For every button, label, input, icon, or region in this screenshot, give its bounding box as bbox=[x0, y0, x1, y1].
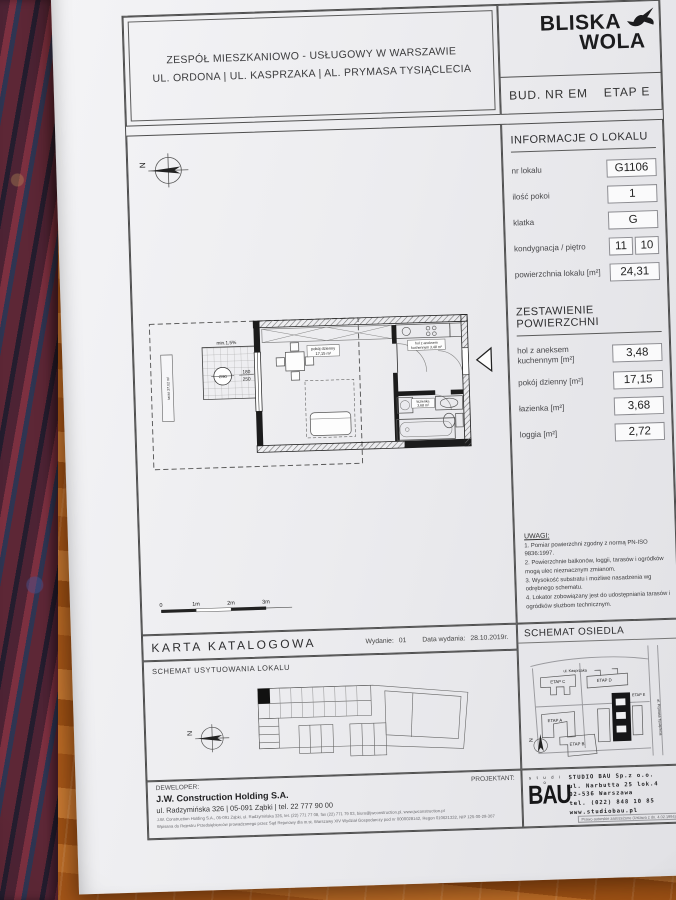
developer-box: DEWELOPER: J.W. Construction Holding S.A… bbox=[147, 770, 524, 840]
info-label: nr lokalu bbox=[511, 166, 542, 177]
toilet bbox=[443, 413, 463, 428]
info-value: G1106 bbox=[606, 158, 657, 178]
drain-label: ∅90 bbox=[219, 374, 228, 379]
info-label: powierzchnia lokalu [m²] bbox=[515, 268, 601, 281]
info-value: 24,31 bbox=[609, 262, 660, 282]
issue: Wydanie:01 bbox=[365, 637, 406, 645]
info-label: klatka bbox=[513, 218, 534, 229]
svg-text:0: 0 bbox=[159, 603, 162, 609]
studio-logo-main: BAU bbox=[528, 782, 565, 809]
catalog-card-meta: Wydanie:01 Data wydania:28.10.2019r. bbox=[365, 633, 508, 644]
bath-wall-right bbox=[451, 389, 464, 394]
partition-lower bbox=[393, 373, 400, 442]
area-row: hol z aneksem kuchennym [m²] 3,48 bbox=[517, 342, 663, 367]
info-row: klatka G bbox=[513, 210, 658, 233]
brand-cell: BLISKA WOLA BUD. NR EM ETAP E bbox=[497, 0, 662, 115]
sofa bbox=[310, 412, 351, 436]
info-value: 1 bbox=[607, 184, 658, 204]
brand-logo: BLISKA WOLA bbox=[498, 1, 660, 78]
bath-wall-left bbox=[398, 390, 436, 396]
kitchen-counter bbox=[396, 323, 450, 338]
bath-door-arc bbox=[435, 394, 451, 410]
unit-partitions bbox=[269, 686, 358, 719]
window-dim-width: 180 bbox=[242, 369, 250, 375]
entry-arrow bbox=[476, 348, 491, 371]
unit-location-drawing: N bbox=[162, 667, 501, 778]
area-row: pokój dzienny [m²] 17,15 bbox=[518, 370, 663, 393]
svg-text:N: N bbox=[138, 162, 147, 168]
wardrobe bbox=[262, 325, 392, 343]
info-row: ilość pokoi 1 bbox=[512, 184, 657, 207]
bottom-right-column: SCHEMAT OSIEDLA ul. Kasprzaka bbox=[517, 619, 676, 828]
area-value: 3,48 bbox=[612, 343, 663, 363]
info-value-floor-a: 11 bbox=[609, 237, 634, 256]
estate-map-panel: SCHEMAT OSIEDLA ul. Kasprzaka bbox=[517, 619, 676, 770]
window-dim-height: 250 bbox=[243, 376, 251, 382]
architect-label: PROJEKTANT: bbox=[471, 775, 515, 783]
info-label: kondygnacja / piętro bbox=[514, 242, 586, 254]
svg-text:N: N bbox=[529, 738, 535, 742]
issue-date: Data wydania:28.10.2019r. bbox=[422, 633, 508, 643]
area-value: 2,72 bbox=[615, 422, 666, 442]
floorplan-drawing: taras 27,02 m² min.1,5% ∅90 180 250 bbox=[145, 305, 498, 474]
street-label-top: ul. Kasprzaka bbox=[563, 669, 587, 674]
stove-burners bbox=[426, 326, 436, 336]
catalog-card-title: KARTA KATALOGOWA bbox=[151, 636, 316, 655]
hummingbird-icon bbox=[625, 6, 656, 29]
bath-area: 3,68 m² bbox=[417, 403, 430, 407]
left-wall-upper bbox=[253, 321, 260, 352]
fridge bbox=[450, 323, 462, 337]
photo-of-catalog-card: ZESPÓŁ MIESZKANIOWO - USŁUGOWY W WARSZAW… bbox=[0, 0, 676, 900]
etap-e-label: ETAP E bbox=[632, 693, 646, 697]
main-row: N tar bbox=[126, 119, 676, 636]
paper-sheet: ZESPÓŁ MIESZKANIOWO - USŁUGOWY W WARSZAW… bbox=[50, 0, 676, 895]
areas-title: ZESTAWIENIE POWIERZCHNI bbox=[516, 300, 662, 337]
print-frame: ZESPÓŁ MIESZKANIOWO - USŁUGOWY W WARSZAW… bbox=[121, 0, 676, 840]
area-label: loggia [m²] bbox=[520, 429, 558, 440]
studio-bau-logo: s t u d i o BAU bbox=[528, 774, 565, 806]
area-row: loggia [m²] 2,72 bbox=[520, 422, 665, 445]
svg-text:N: N bbox=[187, 731, 194, 736]
etap-c-label: ETAP C bbox=[550, 679, 565, 684]
entry-door-arc bbox=[438, 350, 463, 376]
slope-note: min.1,5% bbox=[216, 340, 237, 347]
info-label: ilość pokoi bbox=[512, 191, 550, 202]
svg-text:3m: 3m bbox=[262, 599, 270, 605]
note-item: 4. Lokator zobowiązany jest do udostępni… bbox=[526, 590, 671, 611]
info-value-floor-b: 10 bbox=[635, 236, 660, 255]
etap-b-label: ETAP B bbox=[570, 741, 585, 746]
carpet-background bbox=[0, 0, 58, 900]
studio-contact: STUDIO BAU Sp.z o.o. ul. Narbutta 25 lok… bbox=[569, 771, 660, 817]
bottom-row: KARTA KATALOGOWA Wydanie:01 Data wydania… bbox=[142, 619, 676, 840]
brand-line2: WOLA bbox=[499, 31, 646, 56]
info-row: kondygnacja / piętro 11 10 bbox=[514, 236, 659, 259]
etap-d-label: ETAP D bbox=[597, 677, 612, 682]
area-value: 3,68 bbox=[614, 396, 665, 416]
room-area: 17,15 m² bbox=[315, 351, 331, 357]
street-label-right: al. Prymasa Tysiąclecia bbox=[656, 699, 662, 735]
area-row: łazienka [m²] 3,68 bbox=[519, 396, 664, 419]
estate-map-title: SCHEMAT OSIEDLA bbox=[518, 620, 676, 644]
etap-a-label: ETAP A bbox=[548, 718, 563, 723]
area-label: hol z aneksem kuchennym [m²] bbox=[517, 344, 604, 367]
info-row: powierzchnia lokalu [m²] 24,31 bbox=[515, 262, 660, 285]
project-title-box: ZESPÓŁ MIESZKANIOWO - USŁUGOWY W WARSZAW… bbox=[123, 5, 501, 127]
north-arrow-icon: N bbox=[135, 141, 195, 201]
unit-location-panel: SCHEMAT USYTUOWANIA LOKALU bbox=[143, 650, 522, 782]
area-value: 17,15 bbox=[613, 370, 664, 390]
stage-number: ETAP E bbox=[604, 84, 651, 99]
info-title: INFORMACJE O LOKALU bbox=[510, 128, 656, 153]
site-north-arrow: N bbox=[187, 724, 230, 753]
left-wall-lower bbox=[256, 411, 263, 446]
area-label: łazienka [m²] bbox=[519, 403, 565, 414]
bottom-wall-solid bbox=[405, 439, 472, 448]
architect-box: s t u d i o BAU STUDIO BAU Sp.z o.o. ul.… bbox=[521, 765, 676, 828]
floorplan-panel: N tar bbox=[126, 124, 517, 636]
building-etap-a bbox=[542, 712, 576, 738]
building-stage-row: BUD. NR EM ETAP E bbox=[501, 73, 662, 114]
svg-text:1m: 1m bbox=[192, 602, 200, 608]
building-number: BUD. NR EM bbox=[509, 86, 588, 102]
kitchen-sink bbox=[402, 327, 411, 336]
highlighted-unit bbox=[258, 688, 270, 703]
right-wall bbox=[461, 314, 471, 446]
info-panel: INFORMACJE O LOKALU nr lokalu G1106 iloś… bbox=[501, 119, 676, 624]
scale-bar: 0 1m 2m 3m bbox=[156, 596, 297, 620]
estate-map-drawing: ul. Kasprzaka al. Prymasa Tysiąclecia bbox=[523, 641, 676, 764]
svg-text:2m: 2m bbox=[227, 600, 235, 606]
info-row: nr lokalu G1106 bbox=[511, 158, 656, 181]
info-value: G bbox=[608, 210, 659, 230]
partition-upper bbox=[392, 325, 397, 344]
notes-block: UWAGI: 1. Pomiar powierzchni zgodny z no… bbox=[524, 529, 671, 613]
terrace-label: taras 27,02 m² bbox=[166, 376, 171, 400]
washing-machine bbox=[397, 397, 413, 413]
bottom-left-column: KARTA KATALOGOWA Wydanie:01 Data wydania… bbox=[142, 624, 523, 840]
building-etap-c bbox=[540, 675, 575, 695]
header-row: ZESPÓŁ MIESZKANIOWO - USŁUGOWY W WARSZAW… bbox=[123, 0, 663, 127]
area-label: pokój dzienny [m²] bbox=[518, 376, 583, 388]
